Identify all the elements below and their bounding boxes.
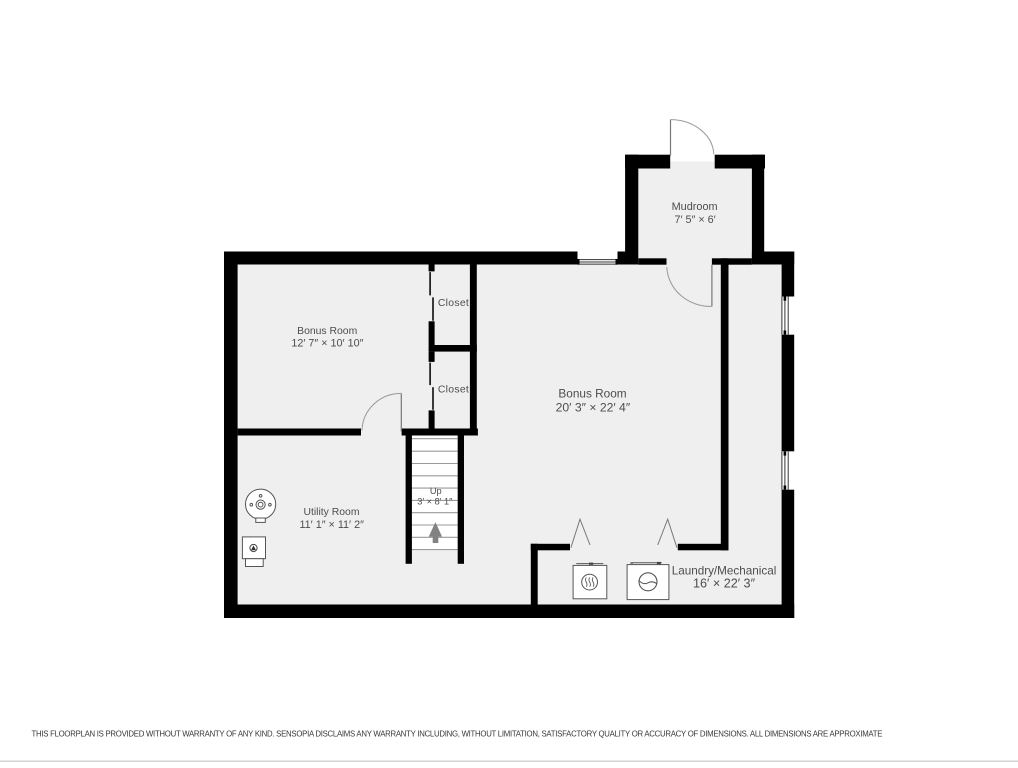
svg-text:Bonus Room: Bonus Room	[558, 387, 626, 401]
svg-text:20′ 3″ × 22′ 4″: 20′ 3″ × 22′ 4″	[556, 400, 631, 414]
svg-text:11′ 1″ × 11′ 2″: 11′ 1″ × 11′ 2″	[299, 519, 364, 531]
svg-text:16′ × 22′ 3″: 16′ × 22′ 3″	[693, 577, 756, 591]
svg-text:THIS FLOORPLAN IS PROVIDED WIT: THIS FLOORPLAN IS PROVIDED WITHOUT WARRA…	[32, 729, 883, 738]
svg-text:12′ 7″ × 10′ 10″: 12′ 7″ × 10′ 10″	[291, 338, 363, 350]
svg-text:Utility Room: Utility Room	[303, 507, 359, 518]
svg-text:3′ × 8′ 1″: 3′ × 8′ 1″	[417, 497, 453, 507]
svg-text:Bonus Room: Bonus Room	[297, 326, 357, 337]
svg-text:Up: Up	[430, 486, 442, 496]
svg-text:7′ 5″ × 6′: 7′ 5″ × 6′	[674, 214, 715, 226]
svg-text:Closet: Closet	[438, 384, 469, 395]
svg-text:Laundry/Mechanical: Laundry/Mechanical	[672, 564, 777, 577]
svg-text:Closet: Closet	[438, 298, 469, 309]
svg-text:Mudroom: Mudroom	[672, 201, 718, 213]
